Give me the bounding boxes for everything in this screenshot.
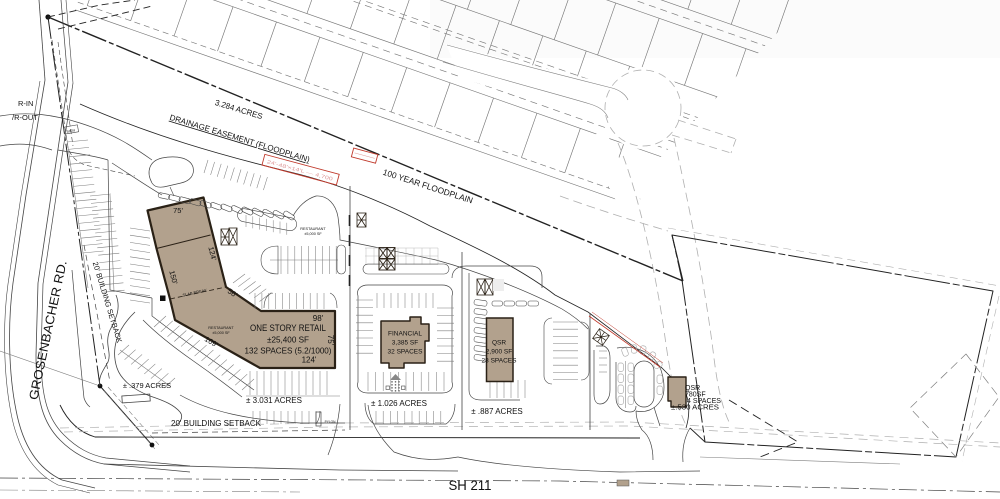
svg-text:±5,000 SF: ±5,000 SF (212, 331, 230, 335)
svg-text:20' BUILDING SETBACK: 20' BUILDING SETBACK (171, 419, 262, 428)
svg-text:±5,000 SF: ±5,000 SF (304, 232, 322, 236)
svg-text:32 SPACES: 32 SPACES (388, 349, 424, 356)
svg-text:±.530 ACRES: ±.530 ACRES (671, 405, 719, 412)
svg-text:/R-OUT: /R-OUT (12, 113, 38, 122)
svg-text:PYLON: PYLON (325, 420, 337, 424)
svg-text:132 SPACES (5.2/1000): 132 SPACES (5.2/1000) (245, 346, 332, 356)
svg-text:75': 75' (173, 206, 183, 215)
svg-text:98': 98' (313, 314, 324, 323)
svg-text:SH 211: SH 211 (449, 477, 492, 493)
svg-text:75': 75' (326, 335, 335, 346)
svg-text:FINANCIAL: FINANCIAL (388, 331, 422, 338)
svg-text:± 3.031 ACRES: ± 3.031 ACRES (246, 396, 302, 405)
svg-text:± 1.026 ACRES: ± 1.026 ACRES (371, 399, 427, 408)
svg-text:± .379 ACRES: ± .379 ACRES (123, 381, 171, 390)
svg-text:ONE STORY RETAIL: ONE STORY RETAIL (250, 323, 326, 333)
svg-text:RESTAURANT: RESTAURANT (300, 227, 326, 231)
svg-text:2,900 SF: 2,900 SF (486, 349, 512, 356)
svg-text:R-IN: R-IN (18, 99, 33, 108)
svg-text:3,385 SF: 3,385 SF (392, 340, 418, 347)
svg-text:±25,400 SF: ±25,400 SF (267, 335, 309, 345)
svg-text:RESTAURANT: RESTAURANT (208, 326, 234, 330)
svg-text:± .887 ACRES: ± .887 ACRES (471, 407, 523, 416)
svg-text:124': 124' (302, 356, 317, 365)
svg-text:QSR: QSR (492, 340, 506, 347)
svg-text:28 SPACES: 28 SPACES (482, 358, 518, 365)
